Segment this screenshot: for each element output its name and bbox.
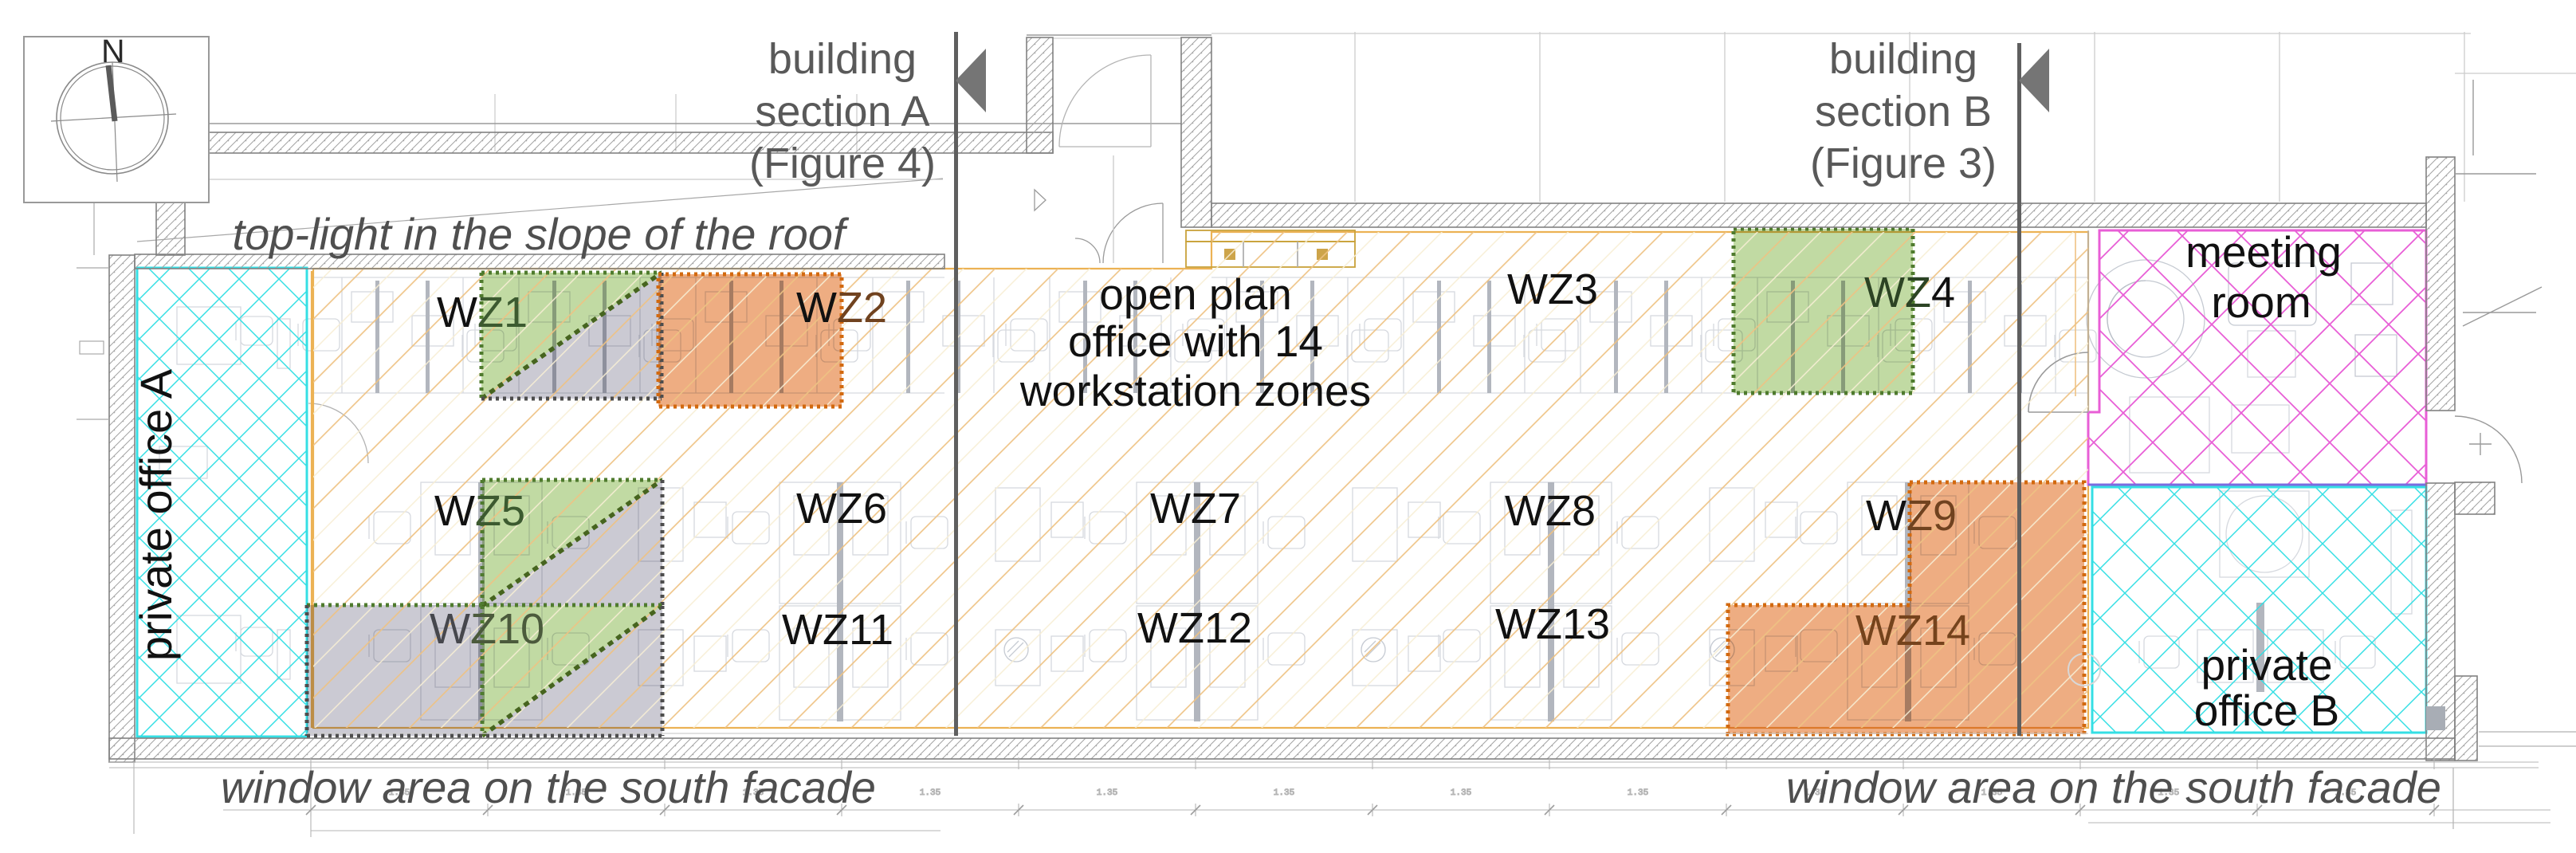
svg-text:office B: office B [2194,686,2339,735]
svg-text:private office A: private office A [131,368,181,661]
svg-text:1.35: 1.35 [1274,788,1294,798]
svg-text:WZ1: WZ1 [437,289,528,336]
svg-text:1.35: 1.35 [1451,788,1471,798]
svg-text:meeting: meeting [2185,227,2342,277]
svg-text:WZ4: WZ4 [1864,269,1955,316]
svg-text:WZ11: WZ11 [782,606,893,654]
svg-text:(Figure 3): (Figure 3) [1810,140,1997,187]
svg-text:private: private [2201,640,2332,690]
svg-text:WZ5: WZ5 [434,487,525,535]
svg-text:1.35: 1.35 [1097,788,1117,798]
svg-text:section B: section B [1815,88,1992,136]
svg-text:room: room [2211,277,2311,327]
svg-text:top-light in the slope of the: top-light in the slope of the roof [233,209,850,259]
svg-text:WZ10: WZ10 [430,605,544,653]
svg-text:(Figure 4): (Figure 4) [749,140,936,187]
svg-text:WZ9: WZ9 [1866,492,1957,540]
svg-text:WZ14: WZ14 [1855,607,1970,654]
svg-text:workstation zones: workstation zones [1019,366,1371,415]
svg-text:WZ7: WZ7 [1150,485,1241,533]
svg-text:open plan: open plan [1099,269,1292,319]
svg-text:1.35: 1.35 [1628,788,1648,798]
svg-text:office with 14: office with 14 [1068,316,1323,366]
svg-text:window area on the south facad: window area on the south facade [221,762,876,812]
svg-text:1.35: 1.35 [920,788,940,798]
svg-text:window area on the south facad: window area on the south facade [1786,762,2441,812]
svg-text:WZ12: WZ12 [1137,604,1252,652]
svg-text:building: building [1829,35,1977,83]
svg-text:N: N [101,33,125,69]
svg-text:WZ8: WZ8 [1505,487,1596,535]
svg-text:section A: section A [755,88,929,136]
svg-text:WZ2: WZ2 [796,284,887,332]
svg-text:WZ3: WZ3 [1507,265,1598,313]
svg-text:WZ6: WZ6 [796,485,887,533]
svg-text:WZ13: WZ13 [1495,600,1610,648]
svg-text:building: building [768,35,917,83]
